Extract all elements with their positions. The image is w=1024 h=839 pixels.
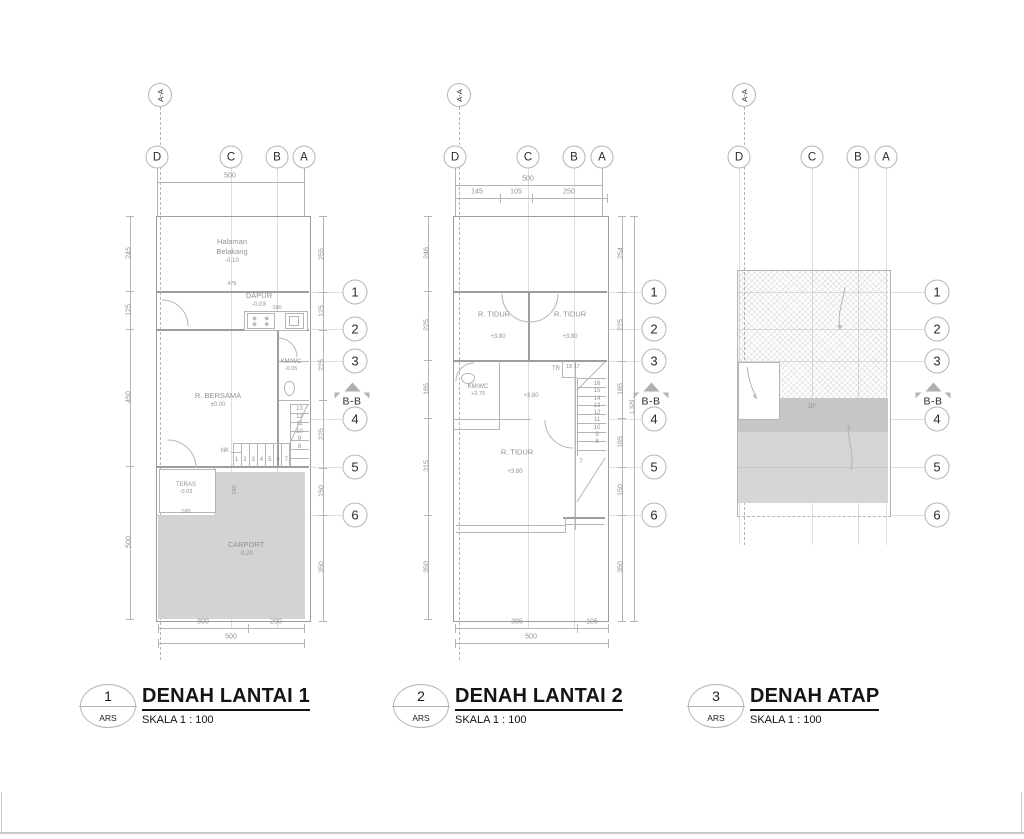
- section-marker-aa: A-A: [447, 83, 471, 107]
- stair-flight: [233, 443, 290, 467]
- room-label-dapur: DAPUR -0.03: [246, 291, 272, 309]
- leader-line: [310, 515, 343, 516]
- roof-line: [738, 292, 888, 293]
- grid-col-bubble-c: C: [801, 146, 824, 169]
- stair-num: 13: [592, 403, 602, 409]
- dim-label: 255: [319, 248, 326, 260]
- dim-label: 105: [510, 189, 522, 196]
- callout-number: 3: [689, 688, 743, 704]
- wall: [156, 291, 309, 293]
- dim-label: 350: [618, 561, 625, 573]
- room-name: Halaman: [216, 237, 247, 247]
- stair-num: 9: [592, 432, 602, 438]
- dim-label: 350: [319, 561, 326, 573]
- title-block-2: DENAH LANTAI 2 SKALA 1 : 100: [455, 685, 623, 726]
- dim-tick: [126, 291, 134, 292]
- dim-tick: [319, 400, 327, 401]
- stair-num: 7: [579, 459, 582, 465]
- dim-tick: [577, 624, 578, 633]
- grid-col-bubble-d: D: [146, 146, 169, 169]
- wall: [499, 361, 500, 430]
- section-circle: A-A: [447, 83, 471, 107]
- room-name: KM/WC: [468, 383, 489, 391]
- leader-line: [608, 329, 641, 330]
- stair-num: 14: [592, 396, 602, 402]
- sheet-border: [0, 832, 1024, 834]
- dim-tick: [126, 329, 134, 330]
- grid-row-bubble-2: 2: [925, 317, 950, 342]
- dim-line: [455, 185, 602, 186]
- grid-col-bubble-a: A: [875, 146, 898, 169]
- leader-line: [890, 419, 924, 420]
- section-wing-icon: [364, 393, 370, 399]
- grid-row-bubble-2: 2: [642, 317, 667, 342]
- leader-line: [608, 292, 641, 293]
- callout-dept: ARS: [394, 713, 448, 723]
- room-level: +3.80: [507, 469, 522, 475]
- section-label: A-A: [155, 89, 164, 102]
- leader-line: [608, 515, 641, 516]
- stair-num: 11: [592, 417, 602, 423]
- title-callout-3: 3 ARS: [688, 684, 744, 728]
- leader-line: [890, 329, 924, 330]
- dim-tick: [304, 624, 305, 633]
- dim-label: 245: [126, 247, 133, 259]
- wall: [528, 292, 530, 361]
- dim-tick: [455, 639, 456, 648]
- dim-label: 476: [227, 281, 236, 287]
- dim-label: 225: [319, 428, 326, 440]
- section-triangle-icon: [925, 383, 941, 392]
- stair-label: NK: [221, 448, 229, 454]
- callout-divider: [79, 706, 137, 707]
- dim-tick: [602, 181, 603, 190]
- dim-tick: [157, 178, 158, 187]
- dim-label: 500: [522, 176, 534, 183]
- grid-row-bubble-6: 6: [925, 503, 950, 528]
- dim-label: 125: [126, 304, 133, 316]
- wall: [453, 291, 607, 293]
- wall: [278, 400, 309, 401]
- wall: [563, 517, 605, 519]
- dim-line: [158, 628, 304, 629]
- stair-num: 15: [592, 388, 602, 394]
- dim-line: [158, 643, 304, 644]
- room-level: -0.05: [281, 366, 302, 373]
- stair-numbers: 1 2 3 4 5 6 7: [235, 457, 288, 463]
- room-label-carport: CARPORT -0.20: [228, 540, 265, 558]
- leader-line: [608, 467, 641, 468]
- grid-line: [304, 167, 305, 216]
- grid-row-bubble-4: 4: [925, 407, 950, 432]
- callout-divider: [392, 706, 450, 707]
- grid-row-bubble-4: 4: [642, 407, 667, 432]
- room-label-kmwc: KM/WC -0.05: [281, 358, 302, 374]
- drawing-scale: SKALA 1 : 100: [455, 714, 623, 726]
- grid-row-bubble-1: 1: [925, 280, 950, 305]
- dim-line: [455, 643, 608, 644]
- room-level: -0.03: [246, 301, 272, 309]
- grid-col-bubble-c: C: [517, 146, 540, 169]
- dim-tick: [126, 466, 134, 467]
- dim-label: 500: [224, 173, 236, 180]
- grid-col-bubble-c: C: [220, 146, 243, 169]
- stove-icon: [247, 313, 275, 329]
- dim-tick: [618, 216, 626, 217]
- section-wing-icon: [945, 393, 951, 399]
- callout-divider: [687, 706, 745, 707]
- grid-col-bubble-b: B: [563, 146, 586, 169]
- room-name: Belakang: [216, 247, 247, 257]
- grid-col-bubble-b: B: [266, 146, 289, 169]
- dim-label: 105: [586, 619, 598, 626]
- dim-label: 185: [618, 436, 625, 448]
- leader-line: [608, 361, 641, 362]
- dim-tick: [319, 621, 327, 622]
- stair-num: 10: [295, 429, 304, 435]
- room-level: +3.80: [490, 334, 505, 340]
- drawing-scale: SKALA 1 : 100: [750, 714, 879, 726]
- leader-line: [310, 292, 343, 293]
- room-name: KM/WC: [281, 358, 302, 366]
- callout-number: 1: [81, 688, 135, 704]
- room-name: DAPUR: [246, 291, 272, 301]
- drawing-title: DENAH LANTAI 2: [455, 685, 623, 711]
- dim-label: 180: [272, 305, 281, 311]
- room-level: ±0.00: [195, 401, 241, 409]
- dim-tick: [532, 194, 533, 203]
- dim-tick: [126, 619, 134, 620]
- room-level: +3.80: [562, 334, 577, 340]
- dim-label: 225: [424, 319, 431, 331]
- stair-num: 7: [285, 457, 288, 463]
- roof-outline: [737, 270, 891, 517]
- title-block-1: DENAH LANTAI 1 SKALA 1 : 100: [142, 685, 310, 726]
- roof-line: [738, 467, 888, 468]
- dim-label: 180: [181, 509, 190, 515]
- stair-numbers: 18 17: [566, 364, 580, 370]
- wall: [453, 429, 500, 430]
- leader-line: [890, 515, 924, 516]
- dim-label: 395: [511, 619, 523, 626]
- wall: [453, 419, 531, 420]
- grid-row-bubble-5: 5: [642, 455, 667, 480]
- dim-tick: [319, 330, 327, 331]
- stair-num: 12: [295, 414, 304, 420]
- section-label: B-B: [923, 396, 942, 408]
- grid-row-bubble-5: 5: [343, 455, 368, 480]
- dim-tick: [304, 639, 305, 648]
- dim-label: 1,329: [630, 399, 636, 414]
- dim-tick: [630, 621, 638, 622]
- drawing-title: DENAH LANTAI 1: [142, 685, 310, 711]
- grid-row-bubble-6: 6: [642, 503, 667, 528]
- dim-label: 500: [525, 634, 537, 641]
- section-wing-icon: [663, 393, 669, 399]
- dim-label: 200: [270, 619, 282, 626]
- section-triangle-icon: [344, 383, 360, 392]
- stair-num: 5: [268, 457, 271, 463]
- dim-tick: [630, 216, 638, 217]
- grid-col-bubble-a: A: [591, 146, 614, 169]
- dim-label: 150: [232, 485, 238, 494]
- parapet: [456, 525, 565, 526]
- dim-tick: [618, 621, 626, 622]
- stair-num: 6: [276, 457, 279, 463]
- section-wing-icon: [915, 393, 921, 399]
- dim-tick: [158, 639, 159, 648]
- dim-tick: [455, 624, 456, 633]
- carport-paving: [214, 472, 305, 515]
- dim-label: 145: [471, 189, 483, 196]
- grid-row-bubble-6: 6: [343, 503, 368, 528]
- dim-label: 350: [424, 561, 431, 573]
- dim-tick: [319, 468, 327, 469]
- dim-label: 315: [424, 460, 431, 472]
- drawing-title: DENAH ATAP: [750, 685, 879, 711]
- leader-line: [890, 467, 924, 468]
- grid-row-bubble-1: 1: [343, 280, 368, 305]
- room-level: -0.20: [228, 550, 265, 558]
- stair-num: 1: [235, 457, 238, 463]
- dim-label: 450: [126, 391, 133, 403]
- dim-tick: [608, 639, 609, 648]
- section-wing-icon: [334, 393, 340, 399]
- stair-num: 18: [566, 364, 572, 370]
- title-callout-2: 2 ARS: [393, 684, 449, 728]
- callout-number: 2: [394, 688, 448, 704]
- section-marker-aa: A-A: [732, 83, 756, 107]
- stair-num: 13: [295, 406, 304, 412]
- dim-tick: [126, 216, 134, 217]
- leader-line: [310, 329, 343, 330]
- dim-tick: [424, 360, 432, 361]
- room-level: -0.10: [216, 257, 247, 265]
- room-level: -0.03: [176, 489, 196, 496]
- callout-dept: ARS: [81, 713, 135, 723]
- leader-line: [310, 419, 343, 420]
- section-marker-aa: A-A: [148, 83, 172, 107]
- grid-line: [455, 167, 456, 216]
- stair-num: 11: [295, 421, 304, 427]
- title-block-3: DENAH ATAP SKALA 1 : 100: [750, 685, 879, 726]
- dim-label: 185: [618, 383, 625, 395]
- room-label-bersama: R. BERSAMA ±0.00: [195, 391, 241, 409]
- sheet-border: [1, 792, 2, 833]
- dim-line: [157, 182, 304, 183]
- dim-tick: [424, 291, 432, 292]
- roof-line: [738, 361, 888, 362]
- sink-basin: [289, 316, 299, 326]
- section-triangle-icon: [643, 383, 659, 392]
- stair-num: 3: [252, 457, 255, 463]
- grid-row-bubble-2: 2: [343, 317, 368, 342]
- roof-slope-label: 10°: [807, 404, 816, 410]
- room-level: +3.75: [468, 391, 489, 398]
- stair-num: 12: [592, 410, 602, 416]
- stair-num: 2: [243, 457, 246, 463]
- sheet-border: [1021, 792, 1022, 833]
- stair-numbers: 16 15 14 13 12 11 10 9 8: [592, 381, 602, 445]
- dim-tick: [500, 194, 501, 203]
- parapet: [565, 517, 566, 533]
- dim-line: [455, 198, 607, 199]
- dim-label: 250: [563, 189, 575, 196]
- section-circle: A-A: [148, 83, 172, 107]
- stair-num: 9: [295, 436, 304, 442]
- leader-line: [310, 361, 343, 362]
- drawing-sheet: A-A D C B A 500: [0, 0, 1024, 839]
- grid-line: [157, 167, 158, 216]
- section-marker-bb: B-B: [342, 383, 361, 410]
- dim-label: 254: [618, 247, 625, 259]
- callout-dept: ARS: [689, 713, 743, 723]
- dim-label: 246: [424, 247, 431, 259]
- dim-line: [130, 216, 131, 620]
- dim-label: 300: [197, 619, 209, 626]
- room-label-halaman: Halaman Belakang -0.10: [216, 237, 247, 265]
- wall: [562, 377, 577, 378]
- room-name: CARPORT: [228, 540, 265, 550]
- leader-line: [890, 361, 924, 362]
- title-callout-1: 1 ARS: [80, 684, 136, 728]
- grid-col-bubble-d: D: [728, 146, 751, 169]
- parapet: [456, 532, 565, 533]
- dim-label: 185: [424, 383, 431, 395]
- dim-tick: [424, 216, 432, 217]
- grid-col-bubble-a: A: [293, 146, 316, 169]
- section-wing-icon: [633, 393, 639, 399]
- roof-line: [738, 329, 888, 330]
- section-label: A-A: [454, 89, 463, 102]
- room-name: TERAS: [176, 481, 196, 489]
- stair-label: TR: [552, 366, 560, 372]
- dim-tick: [304, 178, 305, 187]
- stair-numbers: 13 12 11 10 9 8: [295, 406, 304, 450]
- room-name: R. BERSAMA: [195, 391, 241, 401]
- parapet: [565, 524, 604, 525]
- stair-num: 8: [592, 439, 602, 445]
- grid-row-bubble-1: 1: [642, 280, 667, 305]
- section-circle: A-A: [732, 83, 756, 107]
- dim-label: 500: [126, 536, 133, 548]
- stair-num: 8: [295, 444, 304, 450]
- room-name: R. TIDUR: [554, 310, 586, 319]
- room-label-kmwc: KM/WC +3.75: [468, 383, 489, 399]
- dim-label: 150: [618, 484, 625, 496]
- grid-line: [602, 167, 603, 216]
- dim-tick: [424, 418, 432, 419]
- dim-tick: [455, 181, 456, 190]
- dim-tick: [158, 624, 159, 633]
- room-name: R. TIDUR: [501, 448, 533, 457]
- dim-tick: [607, 194, 608, 203]
- grid-row-bubble-3: 3: [925, 349, 950, 374]
- dim-label: 125: [319, 305, 326, 317]
- leader-line: [231, 452, 241, 453]
- wall: [453, 360, 607, 362]
- room-name: R. TIDUR: [478, 310, 510, 319]
- dim-tick: [608, 624, 609, 633]
- dim-tick: [455, 194, 456, 203]
- wall: [575, 361, 576, 530]
- stair-num: 17: [574, 364, 580, 370]
- leader-line: [608, 419, 641, 420]
- grid-row-bubble-4: 4: [343, 407, 368, 432]
- section-marker-bb: B-B: [641, 383, 660, 410]
- room-label-teras: TERAS -0.03: [176, 481, 196, 497]
- dim-tick: [424, 515, 432, 516]
- leader-line: [310, 467, 343, 468]
- room-level: +3.80: [523, 393, 538, 399]
- carport-paving: [158, 515, 305, 619]
- dim-tick: [424, 619, 432, 620]
- grid-col-bubble-b: B: [847, 146, 870, 169]
- drawing-scale: SKALA 1 : 100: [142, 714, 310, 726]
- stair-num: 4: [260, 457, 263, 463]
- dim-line: [455, 628, 608, 629]
- section-marker-bb: B-B: [923, 383, 942, 410]
- wall: [562, 361, 563, 377]
- dim-label: 500: [225, 634, 237, 641]
- grid-col-bubble-d: D: [444, 146, 467, 169]
- stair-num: 10: [592, 425, 602, 431]
- grid-row-bubble-5: 5: [925, 455, 950, 480]
- grid-row-bubble-3: 3: [642, 349, 667, 374]
- dim-tick: [319, 216, 327, 217]
- dim-tick: [248, 624, 249, 633]
- section-label: A-A: [739, 89, 748, 102]
- stair-num: 16: [592, 381, 602, 387]
- grid-row-bubble-3: 3: [343, 349, 368, 374]
- dim-label: 150: [319, 485, 326, 497]
- leader-line: [890, 292, 924, 293]
